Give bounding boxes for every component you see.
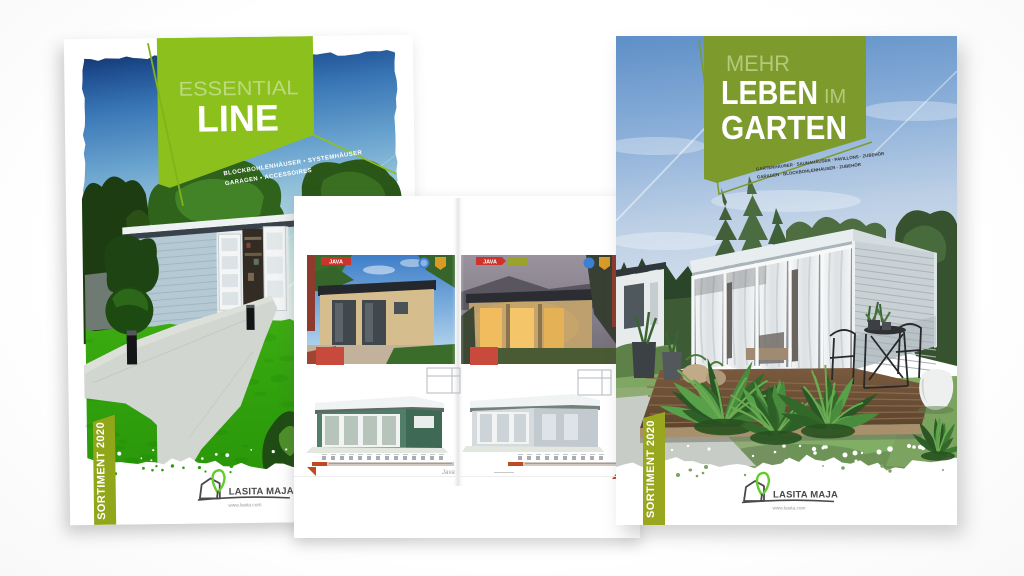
svg-text:JAVA: JAVA <box>329 260 343 266</box>
svg-text:LASITA MAJA: LASITA MAJA <box>229 486 294 498</box>
svg-text:IM: IM <box>824 86 846 108</box>
svg-text:MEHR: MEHR <box>726 51 790 76</box>
svg-text:www.lasita.com: www.lasita.com <box>772 506 805 512</box>
svg-text:JAVA: JAVA <box>483 260 497 266</box>
svg-text:LEBEN: LEBEN <box>721 74 818 111</box>
svg-text:Java: Java <box>441 470 455 476</box>
svg-text:LINE: LINE <box>197 97 280 139</box>
svg-text:SORTIMENT 2020: SORTIMENT 2020 <box>95 422 108 520</box>
svg-text:LASITA MAJA: LASITA MAJA <box>773 490 838 501</box>
svg-text:SORTIMENT 2020: SORTIMENT 2020 <box>645 420 657 518</box>
svg-text:GARTEN: GARTEN <box>721 109 847 146</box>
svg-text:www.lasita.com: www.lasita.com <box>228 502 261 508</box>
